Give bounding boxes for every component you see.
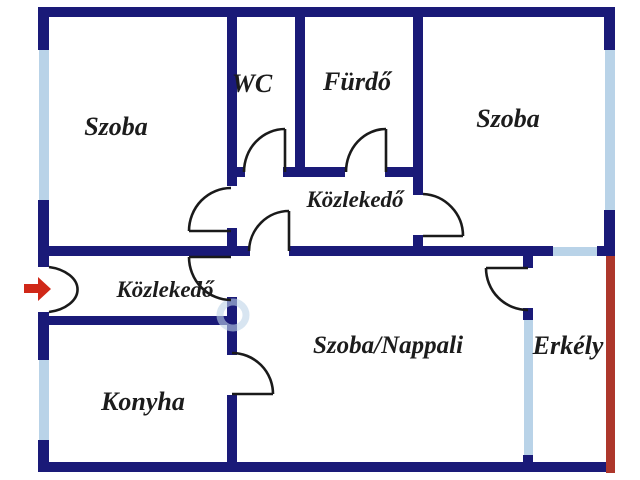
room-label-konyha: Konyha [100,387,185,416]
wall-furdo-szoba [413,7,423,195]
wall-konyha-nappali [227,395,237,462]
wall-balcony-stub-bottom [523,455,533,465]
door-arc [49,267,78,312]
door-corridor-nappali [249,211,289,251]
room-label-kozlekedo-entry: Közlekedő [115,277,215,302]
window-szoba-balcony [553,247,597,256]
entrance-arrow-icon [24,277,51,301]
wall-outer-right [604,7,615,50]
door-entrance [49,267,78,312]
wall-mid-left [38,246,250,256]
wall-corridor-north [283,167,345,177]
door-konyha [232,353,273,394]
door-wc [244,129,285,172]
wall-konyha-top [38,316,237,325]
window-konyha-left [39,360,49,440]
door-furdo [346,129,386,172]
floor-plan-canvas: Szoba WC Fürdő Szoba Közlekedő Közlekedő… [0,0,640,480]
wall-outer-top [38,7,615,17]
wall-outer-bottom [38,462,608,472]
door-szoba-top-right [423,194,463,236]
room-label-szoba-nappali: Szoba/Nappali [313,332,463,359]
room-label-szoba-top-right: Szoba [476,104,540,133]
window-szoba-right [605,50,615,210]
wall-outer-left [38,440,49,472]
door-erkely [486,268,528,310]
door-arc [249,211,289,251]
room-label-furdo: Fürdő [322,67,393,96]
door-arc [189,188,231,231]
window-szoba-left [39,50,49,200]
door-arc [346,129,386,172]
door-szoba-top-left [189,188,231,231]
wall-outer-left [38,7,49,50]
room-label-wc: WC [232,69,273,98]
door-arc [423,194,463,236]
room-label-kozlekedo-central: Közlekedő [305,187,405,212]
room-label-erkely: Erkély [532,331,604,360]
wall-corridor-north [385,167,423,177]
wall-corridor-north [227,167,245,177]
wall-mid-right [289,246,553,256]
wall-mid-corner [597,246,615,256]
door-arc [232,353,273,394]
door-arc [244,129,285,172]
door-arc [486,268,528,310]
wall-outer-left [38,200,49,267]
floor-plan: Szoba WC Fürdő Szoba Közlekedő Közlekedő… [0,0,640,480]
wall-wc-furdo [295,7,305,177]
balcony-railing [606,256,615,473]
room-label-szoba-top-left: Szoba [84,112,148,141]
wall-balcony-stub-top [523,256,533,268]
